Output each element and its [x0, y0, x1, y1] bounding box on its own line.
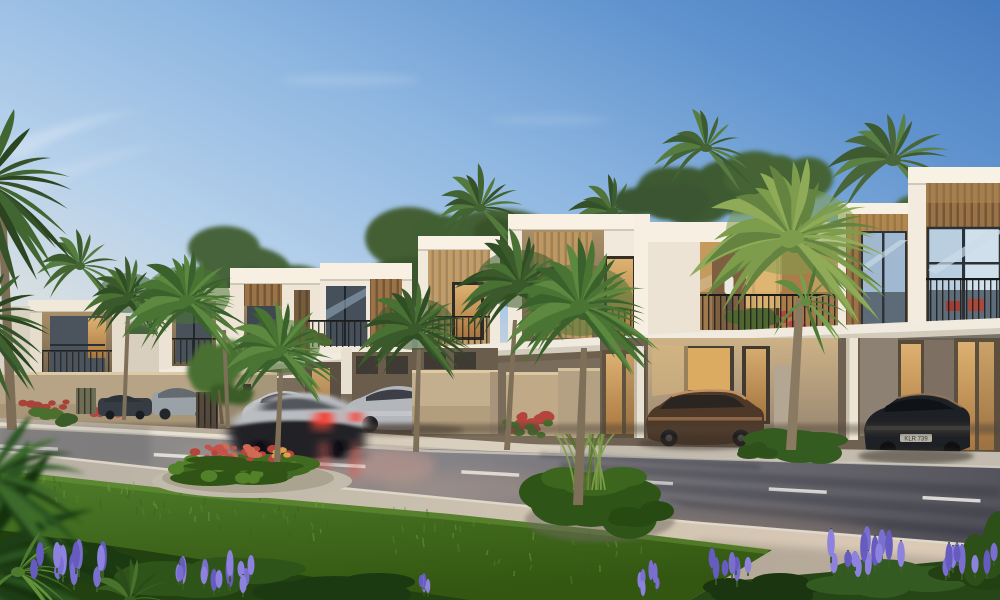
svg-text:KLR 739: KLR 739	[904, 437, 928, 443]
